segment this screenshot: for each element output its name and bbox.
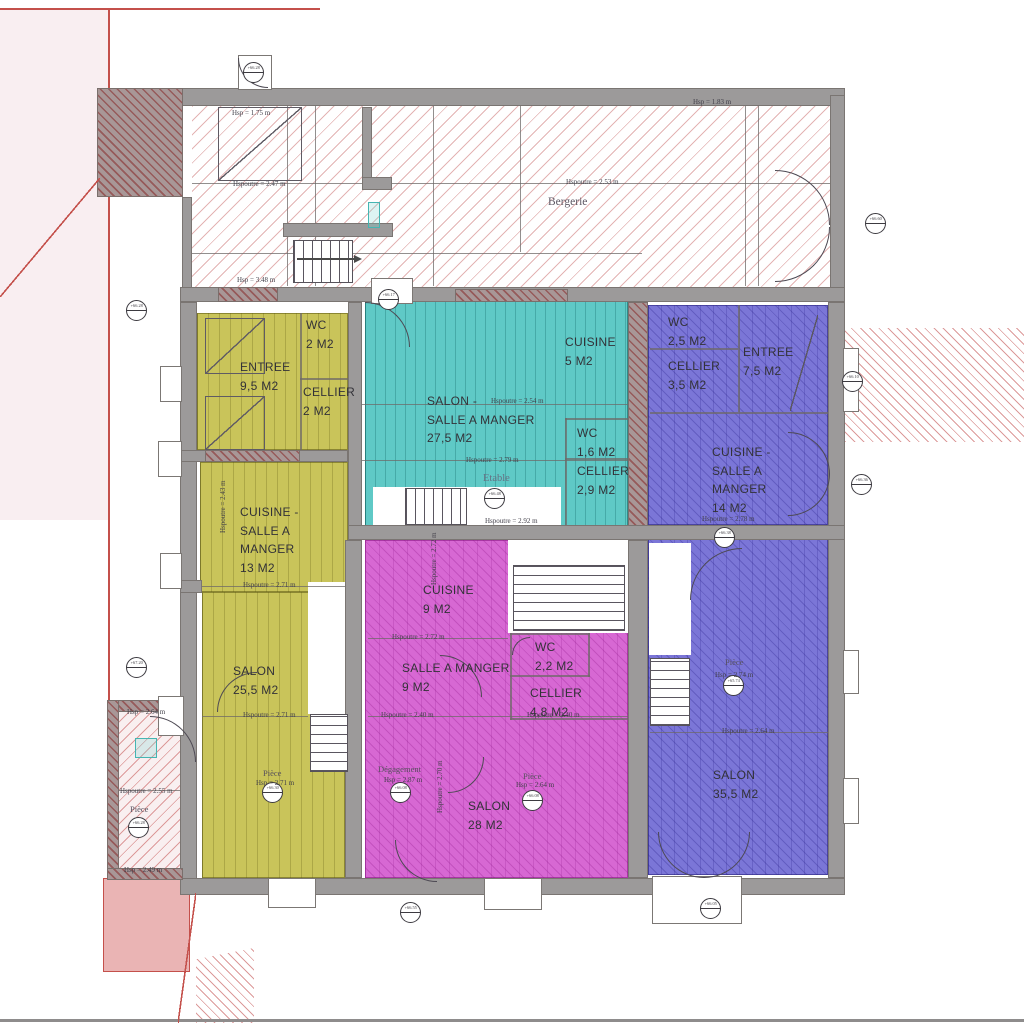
- opening-marker: [218, 107, 302, 181]
- annotation-label: Hspoutre = 2.71 m: [243, 711, 296, 719]
- plan-line: [300, 313, 302, 450]
- diagonal-line: [0, 178, 100, 297]
- plan-line: [510, 633, 590, 635]
- plan-line: [520, 106, 521, 252]
- wall: [830, 95, 845, 302]
- elevation-marker: +66.28: [126, 300, 147, 321]
- elevation-value: +66.08: [526, 793, 538, 798]
- annotation-label: Hsp = 2.64 m: [516, 781, 554, 789]
- opening-marker: [205, 396, 265, 450]
- annotation-label: Pièce: [725, 657, 743, 668]
- diagonal-line: [790, 315, 818, 411]
- stairs: [405, 488, 467, 525]
- plan-line: [745, 106, 746, 286]
- annotation-label: Hspoutre = 2.40 m: [527, 711, 580, 719]
- room-label: SALON 28 M2: [468, 797, 510, 834]
- wall-hatched: [107, 700, 119, 880]
- elevation-marker: +66.48: [484, 488, 505, 509]
- plan-line: [758, 106, 759, 286]
- wall-hatched: [205, 450, 300, 462]
- wall-opening: [160, 553, 182, 589]
- zone-salmon: [103, 878, 190, 972]
- annotation-label: Hspoutre = 2.53 m: [566, 178, 619, 186]
- elevation-value: +66.10: [846, 374, 858, 379]
- annotation-label: Hspoutre = 2.54 m: [491, 397, 544, 405]
- wall: [180, 580, 202, 593]
- elevation-marker: +66.08: [390, 782, 411, 803]
- plan-line: [0, 1019, 1024, 1022]
- elevation-value: +66.48: [488, 491, 500, 496]
- annotation-label: Hspoutre = 2.40 m: [381, 711, 434, 719]
- annotation-label: Hspoutre = 2.79 m: [466, 456, 519, 464]
- elevation-marker: +66.05: [700, 898, 721, 919]
- zone-hatchband: [196, 948, 254, 1023]
- wall: [345, 540, 362, 878]
- plan-line: [738, 305, 740, 412]
- elevation-value: +66.55: [404, 905, 416, 910]
- site-boundary-line: [0, 8, 320, 10]
- annotation-label: Hspoutre = 2.70 m: [436, 760, 444, 813]
- elevation-value: +66.60: [869, 216, 881, 221]
- annotation-label: Hspoutre = 2.72 m: [430, 532, 438, 585]
- wall: [362, 177, 392, 190]
- annotation-label: Hspoutre = 2.71 m: [243, 581, 296, 589]
- elevation-value: +66.28: [130, 303, 142, 308]
- plan-line: [192, 253, 642, 254]
- wall: [97, 88, 845, 106]
- room-label: CELLIER 2 M2: [303, 383, 355, 420]
- annotation-label: Pièce: [130, 804, 148, 815]
- elevation-marker: +66.55: [400, 902, 421, 923]
- elevation-value: +66.28: [132, 820, 144, 825]
- wall-opening: [652, 876, 742, 924]
- wall-opening: [843, 650, 859, 694]
- annotation-label: Hsp = 2.74 m: [715, 671, 753, 679]
- plan-line: [565, 418, 628, 420]
- room-label: SALON 35,5 M2: [713, 766, 758, 803]
- elevation-marker: +66.10: [842, 371, 863, 392]
- plan-line: [510, 633, 512, 720]
- room-label: CUISINE - SALLE A MANGER 13 M2: [240, 503, 299, 577]
- annotation-label: Hspoutre = 2.47 m: [233, 180, 286, 188]
- stairs: [310, 714, 348, 772]
- annotation-label: Hspoutre = 2.72 m: [392, 633, 445, 641]
- elevation-value: +67.20: [130, 660, 142, 665]
- annotation-label: Hsp = 1.75 m: [232, 109, 270, 117]
- annotation-label: Hspoutre = 2.43 m: [219, 480, 227, 533]
- plan-line: [650, 412, 828, 414]
- room-label: CUISINE 5 M2: [565, 333, 616, 370]
- elevation-marker: +66.17: [378, 289, 399, 310]
- plan-line: [433, 106, 434, 286]
- annotation-label: Hspoutre = 2.92 m: [485, 517, 538, 525]
- annotation-label: Hsp = 2.87 m: [384, 776, 422, 784]
- annotation-label: Dégagement: [378, 764, 421, 775]
- wall-hatched: [218, 287, 278, 302]
- stairs: [293, 240, 353, 283]
- room-label: ENTREE 7,5 M2: [743, 343, 793, 380]
- annotation-label: Hsp = 3.48 m: [237, 276, 275, 284]
- annotation-label: Bergerie: [548, 196, 587, 208]
- annotation-label: Hsp = 1.83 m: [693, 98, 731, 106]
- floor-plan-canvas: +66.28+66.60+66.28+66.17+66.48+66.10+66.…: [0, 0, 1024, 1023]
- wall-opening: [843, 778, 859, 824]
- room-label: SALON 25,5 M2: [233, 662, 278, 699]
- room-label: ENTREE 9,5 M2: [240, 358, 290, 395]
- stair-direction-arrow: [297, 258, 355, 260]
- annotation-label: Hsp = 2.49 m: [124, 866, 162, 874]
- wall-hatched: [455, 289, 568, 302]
- wall-hatched: [97, 88, 183, 197]
- plan-line: [565, 418, 567, 525]
- wall: [628, 540, 648, 878]
- elevation-value: +66.36: [855, 477, 867, 482]
- fixture-marker: [368, 202, 380, 228]
- room-label: CELLIER 2,9 M2: [577, 462, 629, 499]
- elevation-value: +66.28: [247, 65, 259, 70]
- wall-opening: [158, 441, 182, 477]
- zone-white: [649, 543, 691, 655]
- zone-hatchband: [845, 328, 1024, 442]
- elevation-value: +66.38: [718, 530, 730, 535]
- elevation-marker: +67.20: [126, 657, 147, 678]
- stairs: [650, 658, 690, 726]
- wall-opening: [160, 366, 182, 402]
- annotation-label: Hspoutre = 2.64 m: [722, 727, 775, 735]
- room-label: WC 2,2 M2: [535, 638, 574, 675]
- elevation-marker: +66.28: [128, 817, 149, 838]
- zone-white: [308, 582, 348, 714]
- room-label: SALLE A MANGER 9 M2: [402, 659, 510, 696]
- annotation-label: Etable: [483, 473, 510, 484]
- elevation-value: +66.05: [704, 901, 716, 906]
- room-label: WC 2 M2: [306, 316, 334, 353]
- room-label: CELLIER 3,5 M2: [668, 357, 720, 394]
- room-label: WC 1,6 M2: [577, 424, 616, 461]
- annotation-label: Hsp = 2.71 m: [256, 779, 294, 787]
- room-label: CUISINE 9 M2: [423, 581, 474, 618]
- wall-opening: [268, 878, 316, 908]
- elevation-value: +66.17: [382, 292, 394, 297]
- diagonal-line: [178, 893, 196, 1023]
- plan-line: [510, 675, 590, 677]
- annotation-label: Hspoutre = 2.55 m: [120, 787, 173, 795]
- wall-opening: [484, 878, 542, 910]
- plan-line: [588, 633, 590, 677]
- annotation-label: Pièce: [263, 768, 281, 779]
- annotation-label: Hspoutre = 2.78 m: [702, 515, 755, 523]
- wall: [180, 302, 197, 895]
- elevation-value: +66.08: [394, 785, 406, 790]
- elevation-marker: +66.38: [714, 527, 735, 548]
- wall-hatched: [628, 302, 648, 527]
- elevation-marker: +66.60: [865, 213, 886, 234]
- elevation-marker: +66.28: [243, 62, 264, 83]
- stairs: [513, 565, 625, 631]
- room-label: WC 2,5 M2: [668, 313, 707, 350]
- elevation-marker: +66.36: [851, 474, 872, 495]
- plan-line: [300, 378, 348, 380]
- room-label: CUISINE - SALLE A MANGER 14 M2: [712, 443, 771, 517]
- annotation-label: Hsp = 2.64 m: [127, 708, 165, 716]
- wall: [348, 525, 845, 540]
- elevation-marker: +66.08: [522, 790, 543, 811]
